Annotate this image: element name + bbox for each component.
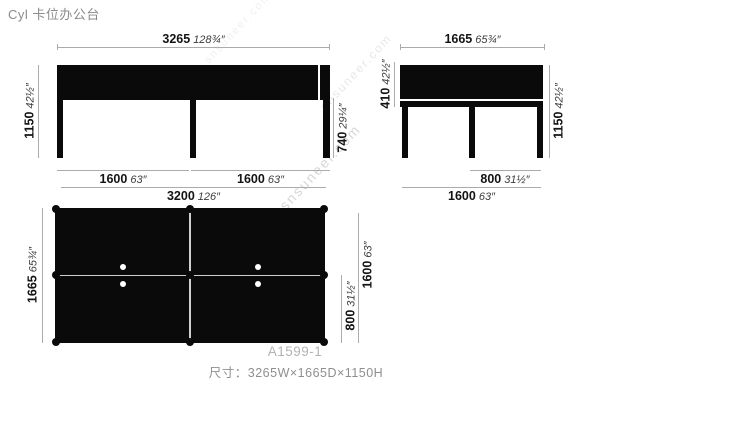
- front-dim-bottom-right-inch: 63″: [268, 174, 284, 186]
- connector-dot: [186, 338, 194, 346]
- side-dim-half-mm: 800: [480, 172, 501, 186]
- side-dim-top-mm: 1665: [444, 32, 472, 46]
- grommet-hole: [255, 264, 261, 270]
- plan-dim-left: 166565¾″: [26, 247, 41, 303]
- side-panel: [400, 65, 543, 99]
- front-dim-bottom-left-line: [57, 170, 189, 171]
- plan-dim-left-line: [42, 208, 43, 343]
- front-dim-bottom-right-line: [191, 170, 330, 171]
- front-dim-total: 3200126″: [61, 189, 326, 204]
- page-title: Cyl 卡位办公台: [8, 4, 100, 23]
- side-dim-total-line: [402, 187, 541, 188]
- plan-dim-half: 80031½″: [344, 281, 359, 330]
- spec-sheet: Cyl 卡位办公台 snsuneer.com snsuneer.com snsu…: [0, 0, 750, 427]
- front-dim-right-line: [333, 98, 334, 158]
- plan-dim-total-inch: 63″: [363, 242, 375, 258]
- front-leg-right: [323, 100, 330, 158]
- connector-dot: [320, 271, 328, 279]
- grommet-hole: [120, 281, 126, 287]
- front-panel-divider: [318, 65, 320, 100]
- front-leg-center: [190, 100, 196, 158]
- side-dim-top-inch: 65¾″: [475, 34, 500, 46]
- plan-dim-total-mm: 1600: [361, 261, 375, 289]
- front-dim-left-line: [38, 65, 39, 158]
- side-dim-left-mm: 410: [379, 88, 393, 109]
- front-dim-top: 3265128¾″: [57, 32, 330, 47]
- front-dim-right-mm: 740: [336, 132, 350, 153]
- front-dim-top-mm: 3265: [162, 32, 190, 46]
- connector-dot: [186, 271, 194, 279]
- side-dim-right-inch: 42½″: [554, 83, 566, 108]
- connector-dot: [52, 271, 60, 279]
- connector-dot: [186, 205, 194, 213]
- side-dim-total-inch: 63″: [479, 191, 495, 203]
- front-dim-bottom-left: 160063″: [57, 172, 189, 187]
- front-dim-left-inch: 42½″: [25, 83, 37, 108]
- side-dim-top-line: [400, 47, 545, 48]
- side-dim-left-inch: 42½″: [381, 59, 393, 84]
- front-dim-bottom-right: 160063″: [191, 172, 330, 187]
- model-number: A1599-1: [215, 344, 375, 359]
- connector-dot: [320, 205, 328, 213]
- front-dim-top-line: [57, 47, 330, 48]
- front-dim-right-inch: 29¼″: [338, 103, 350, 128]
- plan-dim-half-mm: 800: [344, 310, 358, 331]
- side-dim-half-line: [470, 170, 541, 171]
- front-dim-left: 115042½″: [23, 83, 38, 138]
- plan-dim-total: 160063″: [361, 242, 376, 289]
- plan-dim-left-mm: 1665: [26, 275, 40, 303]
- side-dim-right-mm: 1150: [552, 112, 566, 139]
- front-dim-right: 74029¼″: [336, 103, 351, 152]
- side-leg-left: [402, 106, 408, 158]
- side-dim-left-line: [394, 62, 395, 107]
- plan-dim-total-line: [358, 213, 359, 343]
- front-dim-left-mm: 1150: [23, 112, 37, 139]
- plan-dim-left-inch: 65¾″: [28, 247, 40, 272]
- front-dim-bottom-left-mm: 1600: [100, 172, 128, 186]
- front-dim-total-mm: 3200: [167, 189, 195, 203]
- front-dim-bottom-left-inch: 63″: [130, 174, 146, 186]
- side-dim-total: 160063″: [402, 189, 541, 204]
- side-dim-left: 41042½″: [379, 59, 394, 108]
- front-panel: [57, 65, 330, 100]
- side-dim-half-inch: 31½″: [504, 174, 529, 186]
- side-leg-right: [537, 106, 543, 158]
- front-dim-top-inch: 128¾″: [193, 34, 224, 46]
- side-dim-top: 166565¾″: [400, 32, 545, 47]
- front-leg-left: [57, 100, 63, 158]
- side-dim-right-line: [549, 65, 550, 158]
- front-dim-bottom-right-mm: 1600: [237, 172, 265, 186]
- connector-dot: [52, 338, 60, 346]
- overall-size-text: 尺寸：3265W×1665D×1150H: [146, 362, 446, 381]
- plan-dim-half-line: [341, 275, 342, 343]
- front-dim-total-line: [61, 187, 326, 188]
- plan-dim-half-inch: 31½″: [346, 281, 358, 306]
- connector-dot: [52, 205, 60, 213]
- grommet-hole: [255, 281, 261, 287]
- front-dim-total-inch: 126″: [198, 191, 220, 203]
- side-leg-center: [469, 106, 475, 158]
- side-dim-half: 80031½″: [455, 172, 555, 187]
- side-dim-right: 115042½″: [552, 83, 567, 138]
- grommet-hole: [120, 264, 126, 270]
- side-dim-total-mm: 1600: [448, 189, 476, 203]
